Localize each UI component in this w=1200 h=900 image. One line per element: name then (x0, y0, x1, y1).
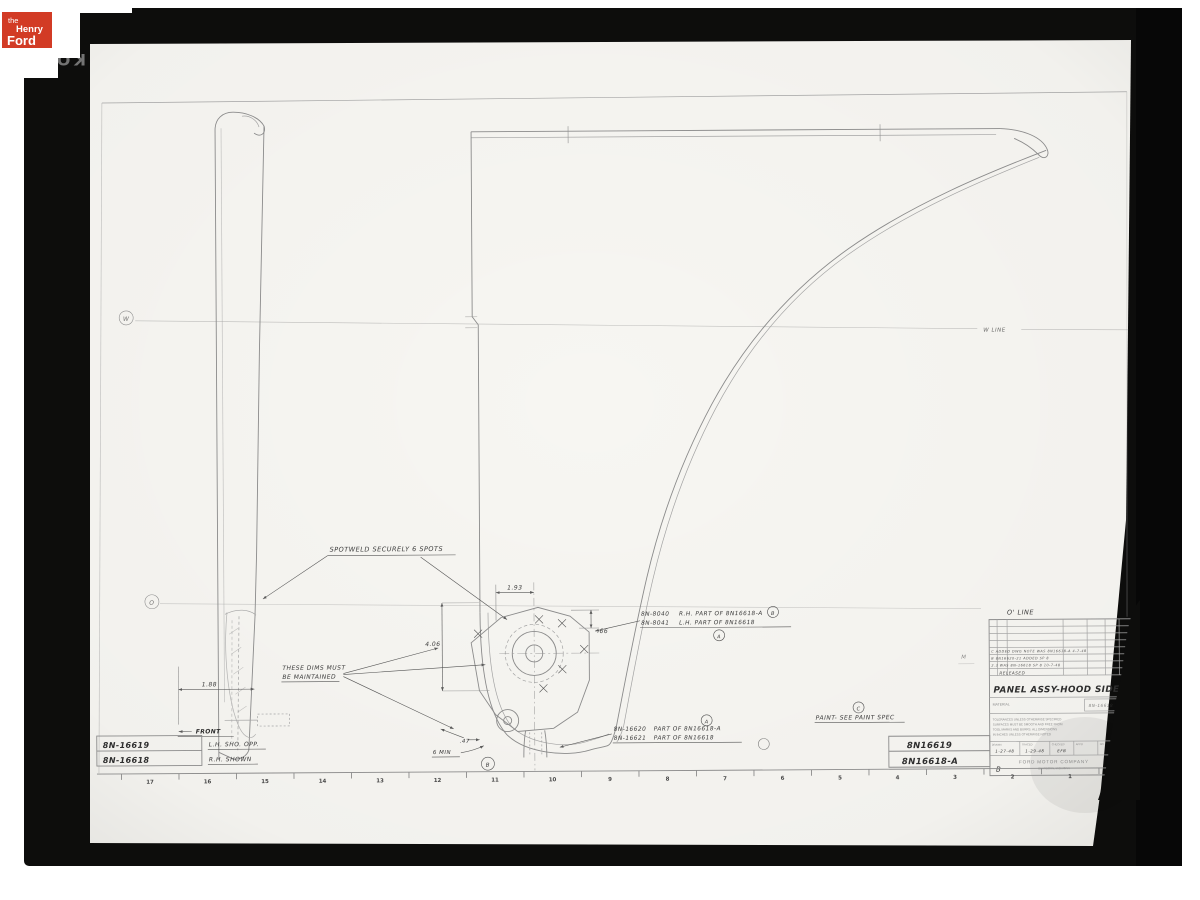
sign-label-no: NO. (1100, 742, 1105, 746)
film-right-band (1136, 8, 1182, 866)
sign-value-traced: 1-29-48 (1025, 748, 1044, 753)
revision-row-2: B 8N16620-21 ADDED SP 8 (991, 656, 1049, 660)
tolerance-note-4: IN INCHES UNLESS OTHERWISE NOTED (993, 732, 1052, 736)
ruler-mark: 3 (953, 775, 957, 781)
revision-row-3: 2.3 WAS 8N-16618 SP 8 10-7-48 (991, 663, 1061, 667)
datum-marker-a: A (704, 719, 709, 725)
dim-6min: 6 MIN (433, 750, 451, 756)
sign-label-traced: TRACED (1022, 742, 1033, 746)
ruler-mark: 2 (1011, 774, 1015, 780)
tolerance-note-3: TOOL MARKS AND BURRS. ALL DIMENSIONS (993, 727, 1057, 731)
sign-value-checked: EFB (1057, 748, 1066, 753)
sign-label-checked: CHECKED (1052, 742, 1065, 746)
brace-callout-lh-num: 8N-16621 (614, 736, 647, 742)
hinge-callout-rh-num: 8N-8040 (641, 612, 669, 618)
hinge-callout-rh-desc: R.H. PART OF 8N16618-A (679, 611, 763, 618)
company-name: FORD MOTOR COMPANY (1019, 759, 1089, 764)
hinge-callout-lh-desc: L.H. PART OF 8N16618 (679, 620, 755, 626)
m-marker: M (961, 655, 966, 661)
sheet-title: PANEL ASSY-HOOD SIDE (993, 685, 1119, 696)
w-datum-letter: W (123, 316, 130, 323)
sign-label-appd: APPD (1076, 742, 1083, 746)
material-value: 8N-16618 (1089, 703, 1114, 708)
ruler-mark: 7 (723, 776, 727, 782)
ruler-mark: 16 (204, 779, 212, 785)
ruler-mark: 11 (491, 778, 499, 784)
sign-value-drawn: 1-27-48 (995, 748, 1014, 753)
blueprint-scan: KOD the Henry Ford W W LINE O (0, 0, 1200, 900)
sign-label-drawn: DRAWN (992, 743, 1002, 747)
maintain-note-line1: THESE DIMS MUST (282, 665, 346, 672)
scanned-blueprint-page: KOD the Henry Ford W W LINE O (0, 0, 1200, 900)
part-number-2: 8N-16618 (103, 756, 150, 765)
title-block-corner-letter: B (996, 766, 1001, 774)
part-note-2: R.H. SHOWN (209, 756, 252, 763)
section-marker-letter: B (486, 763, 490, 769)
datum-marker-a2: A (716, 634, 721, 640)
corner-number-1: 8N16619 (907, 741, 952, 751)
ruler-mark: 9 (608, 777, 612, 783)
ruler-mark: 5 (838, 776, 842, 782)
o-datum-letter: O (149, 600, 154, 607)
part-number-1: 8N-16619 (103, 741, 150, 750)
drawing-sheet (90, 40, 1140, 846)
brace-callout-lh-desc: PART OF 8N16618 (654, 735, 714, 741)
revision-row-1: C ADDED DWG NOTE WAS 8N16618-A 4-7-48 (991, 649, 1087, 654)
paper-vignette (90, 40, 1131, 846)
maintain-note-line2: BE MAINTAINED (282, 674, 336, 681)
brace-callout-rh-num: 8N-16620 (614, 727, 647, 733)
tolerance-note-1: TOLERANCES UNLESS OTHERWISE SPECIFIED (993, 717, 1063, 721)
ruler-mark: 8 (666, 777, 670, 783)
dim-406: 4.06 (425, 641, 440, 648)
material-label: MATERIAL (993, 703, 1010, 707)
ruler-mark: 4 (896, 775, 900, 781)
brace-callout-rh-desc: PART OF 8N16618-A (654, 726, 721, 732)
logo-line-ford: Ford (7, 33, 36, 48)
datum-marker-c: C (857, 706, 861, 712)
part-note-1: L.H. SHO. OPP. (209, 741, 259, 748)
ruler-mark: 12 (434, 778, 442, 784)
ruler-mark: 17 (146, 780, 154, 786)
hinge-callout-lh-num: 8N-8041 (641, 621, 669, 627)
dim-47: .47 (460, 739, 470, 745)
o-line-label: O' LINE (1007, 608, 1034, 616)
front-arrow-label: FRONT (196, 728, 221, 735)
spotweld-note: SPOTWELD SECURELY 6 SPOTS (330, 545, 444, 554)
ruler-mark: 1 (1068, 774, 1072, 780)
ruler-mark: 10 (549, 777, 557, 783)
ruler-mark: 14 (319, 779, 327, 785)
dim-188: 1.88 (202, 681, 217, 688)
tolerance-note-2: SURFACES MUST BE SMOOTH AND FREE FROM (993, 722, 1063, 726)
ruler-mark: 13 (376, 778, 384, 784)
paint-note: PAINT- SEE PAINT SPEC (816, 714, 895, 721)
w-line-label: W LINE (983, 328, 1006, 334)
dim-193: 1.93 (507, 584, 522, 591)
datum-marker-b: B (771, 611, 775, 617)
released-row: RELEASED (999, 670, 1025, 675)
corner-number-2: 8N16618-A (902, 757, 958, 767)
ruler-mark: 6 (781, 776, 785, 782)
ruler-mark: 15 (261, 779, 269, 785)
